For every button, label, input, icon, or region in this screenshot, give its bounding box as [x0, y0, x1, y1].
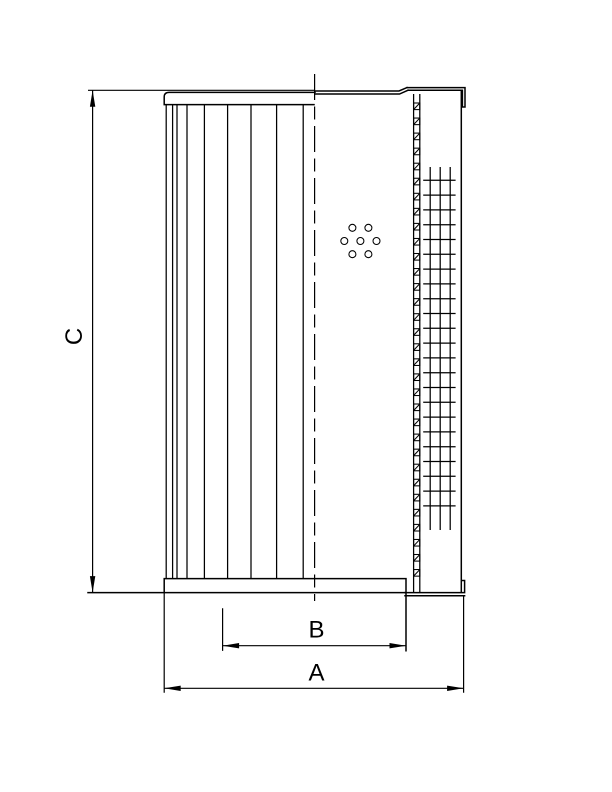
top-end-cap [164, 92, 315, 104]
perforated-core-tube [414, 94, 420, 592]
dimension-a-arrow-right [447, 686, 464, 691]
bottom-end-cap [88, 579, 406, 651]
dimension-c-label: C [61, 328, 88, 345]
dimension-b-label: B [308, 617, 324, 644]
filter-element-technical-drawing: C B A [0, 0, 612, 792]
dimension-c-arrow-down [90, 576, 95, 593]
dimension-b: B [223, 608, 406, 651]
dimension-a-label: A [308, 660, 324, 687]
catalog-drawing-page: C B A [0, 0, 612, 792]
dimension-b-arrow-left [223, 643, 240, 648]
hole-pattern [341, 224, 380, 257]
dimension-c-extension-lines [88, 90, 315, 592]
wire-mesh-hatch [423, 167, 455, 530]
dimension-c-arrow-up [90, 90, 95, 107]
pleat-lines [166, 105, 303, 579]
dimension-b-arrow-right [390, 643, 407, 648]
dimension-a-arrow-left [164, 686, 181, 691]
top-flange [315, 88, 408, 94]
